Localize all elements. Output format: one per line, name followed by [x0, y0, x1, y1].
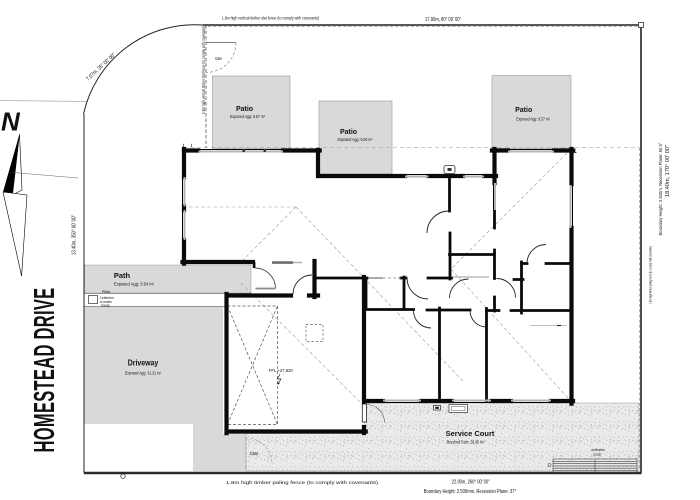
svg-text:(2 posts): (2 posts)	[593, 453, 601, 457]
svg-text:N: N	[1, 107, 21, 137]
svg-text:Pillar: Pillar	[102, 290, 111, 294]
svg-text:Boundary Height: 2.500m, Reces: Boundary Height: 2.500m, Recession Plane…	[658, 142, 663, 235]
svg-text:Exposed Agg: 9.00 m²: Exposed Agg: 9.00 m²	[338, 137, 374, 142]
svg-text:1.8m high vertical timber slat: 1.8m high vertical timber slat fence (to…	[201, 26, 206, 114]
svg-text:Boundary Height: 2.500mm, Rece: Boundary Height: 2.500mm, Recession Plan…	[424, 489, 517, 495]
svg-text:Service Court: Service Court	[446, 429, 495, 438]
svg-text:Path: Path	[114, 271, 131, 280]
svg-text:house: house	[101, 303, 110, 307]
svg-text:18.40m, 170° 00' 00": 18.40m, 170° 00' 00"	[665, 145, 671, 197]
svg-text:clothesline: clothesline	[591, 448, 605, 452]
svg-text:Patio: Patio	[340, 129, 357, 136]
svg-text:22.90m, 260° 00' 00": 22.90m, 260° 00' 00"	[452, 479, 490, 485]
svg-text:1.8m high vertical timber slat: 1.8m high vertical timber slat fence (to…	[222, 15, 320, 20]
svg-text:HOMESTEAD DRIVE: HOMESTEAD DRIVE	[29, 288, 61, 453]
svg-text:Patio: Patio	[236, 106, 253, 113]
svg-text:Gate: Gate	[215, 56, 223, 61]
svg-text:FFL +27,820: FFL +27,820	[269, 368, 293, 373]
svg-text:Driveway: Driveway	[128, 358, 159, 368]
svg-text:1.8m high timber paling fence: 1.8m high timber paling fence (to comply…	[649, 246, 653, 304]
svg-text:17.90m, 80° 00' 00": 17.90m, 80° 00' 00"	[425, 17, 461, 23]
svg-text:Brushed Conc: 39.05 m²: Brushed Conc: 39.05 m²	[447, 440, 484, 445]
svg-text:Exposed Agg: 3.54 m²: Exposed Agg: 3.54 m²	[114, 282, 155, 287]
svg-text:Patio: Patio	[515, 107, 532, 114]
svg-text:Exposed Agg: 31.31 m²: Exposed Agg: 31.31 m²	[125, 371, 162, 376]
svg-text:Exposed Agg: 9.57 m²: Exposed Agg: 9.57 m²	[516, 117, 550, 122]
svg-text:Exposed Agg: 9.57 m²: Exposed Agg: 9.57 m²	[230, 114, 266, 119]
svg-text:1.8m high timber paling fence: 1.8m high timber paling fence (to comply…	[226, 480, 379, 486]
svg-text:Gate: Gate	[250, 451, 259, 456]
svg-text:13.40m, 350° 00' 00": 13.40m, 350° 00' 00"	[72, 215, 78, 255]
